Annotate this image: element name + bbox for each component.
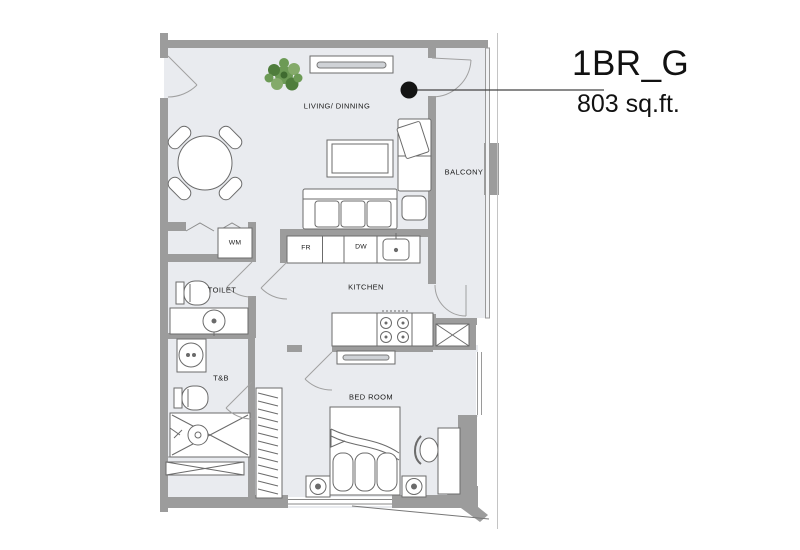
ledge xyxy=(166,462,244,475)
nightstand-left xyxy=(306,476,330,497)
toilet-fixture xyxy=(176,281,210,305)
pillow xyxy=(333,453,353,491)
side-table xyxy=(402,196,426,220)
tv-console xyxy=(310,56,393,73)
nightstand-right xyxy=(402,476,426,497)
room-label-living: LIVING/ DINNING xyxy=(304,102,370,111)
stove xyxy=(377,311,412,346)
bedroom-tv-console xyxy=(337,351,395,364)
vanity-basin xyxy=(170,308,248,336)
bed xyxy=(330,407,400,495)
sofa xyxy=(303,189,397,229)
room-label-toilet: TOILET xyxy=(208,286,237,295)
room-label-kitchen: KITCHEN xyxy=(348,283,384,292)
unit-area: 803 sq.ft. xyxy=(577,92,680,117)
tb-basin xyxy=(177,339,206,372)
pillow xyxy=(355,453,375,491)
desk xyxy=(438,428,460,494)
room-label-tb: T&B xyxy=(213,374,229,383)
appliance-label-wm: WM xyxy=(229,240,241,247)
service-shaft xyxy=(436,324,469,346)
floor-plan-page: LIVING/ DINNING BALCONY KITCHEN TOILET T… xyxy=(0,0,800,550)
appliance-label-dw: DW xyxy=(355,244,367,251)
room-label-balcony: BALCONY xyxy=(445,168,484,177)
dining-table xyxy=(178,136,232,190)
pillow xyxy=(377,453,397,491)
tb-toilet-fixture xyxy=(174,386,208,410)
callout-dot xyxy=(401,82,418,99)
wardrobe xyxy=(256,388,282,498)
coffee-table xyxy=(327,140,393,177)
appliance-label-fr: FR xyxy=(301,245,310,252)
balcony-railing xyxy=(486,48,490,318)
unit-title: 1BR_G xyxy=(572,46,689,81)
room-label-bedroom: BED ROOM xyxy=(349,393,393,402)
chaise-chair xyxy=(397,119,431,191)
shower xyxy=(170,413,250,457)
